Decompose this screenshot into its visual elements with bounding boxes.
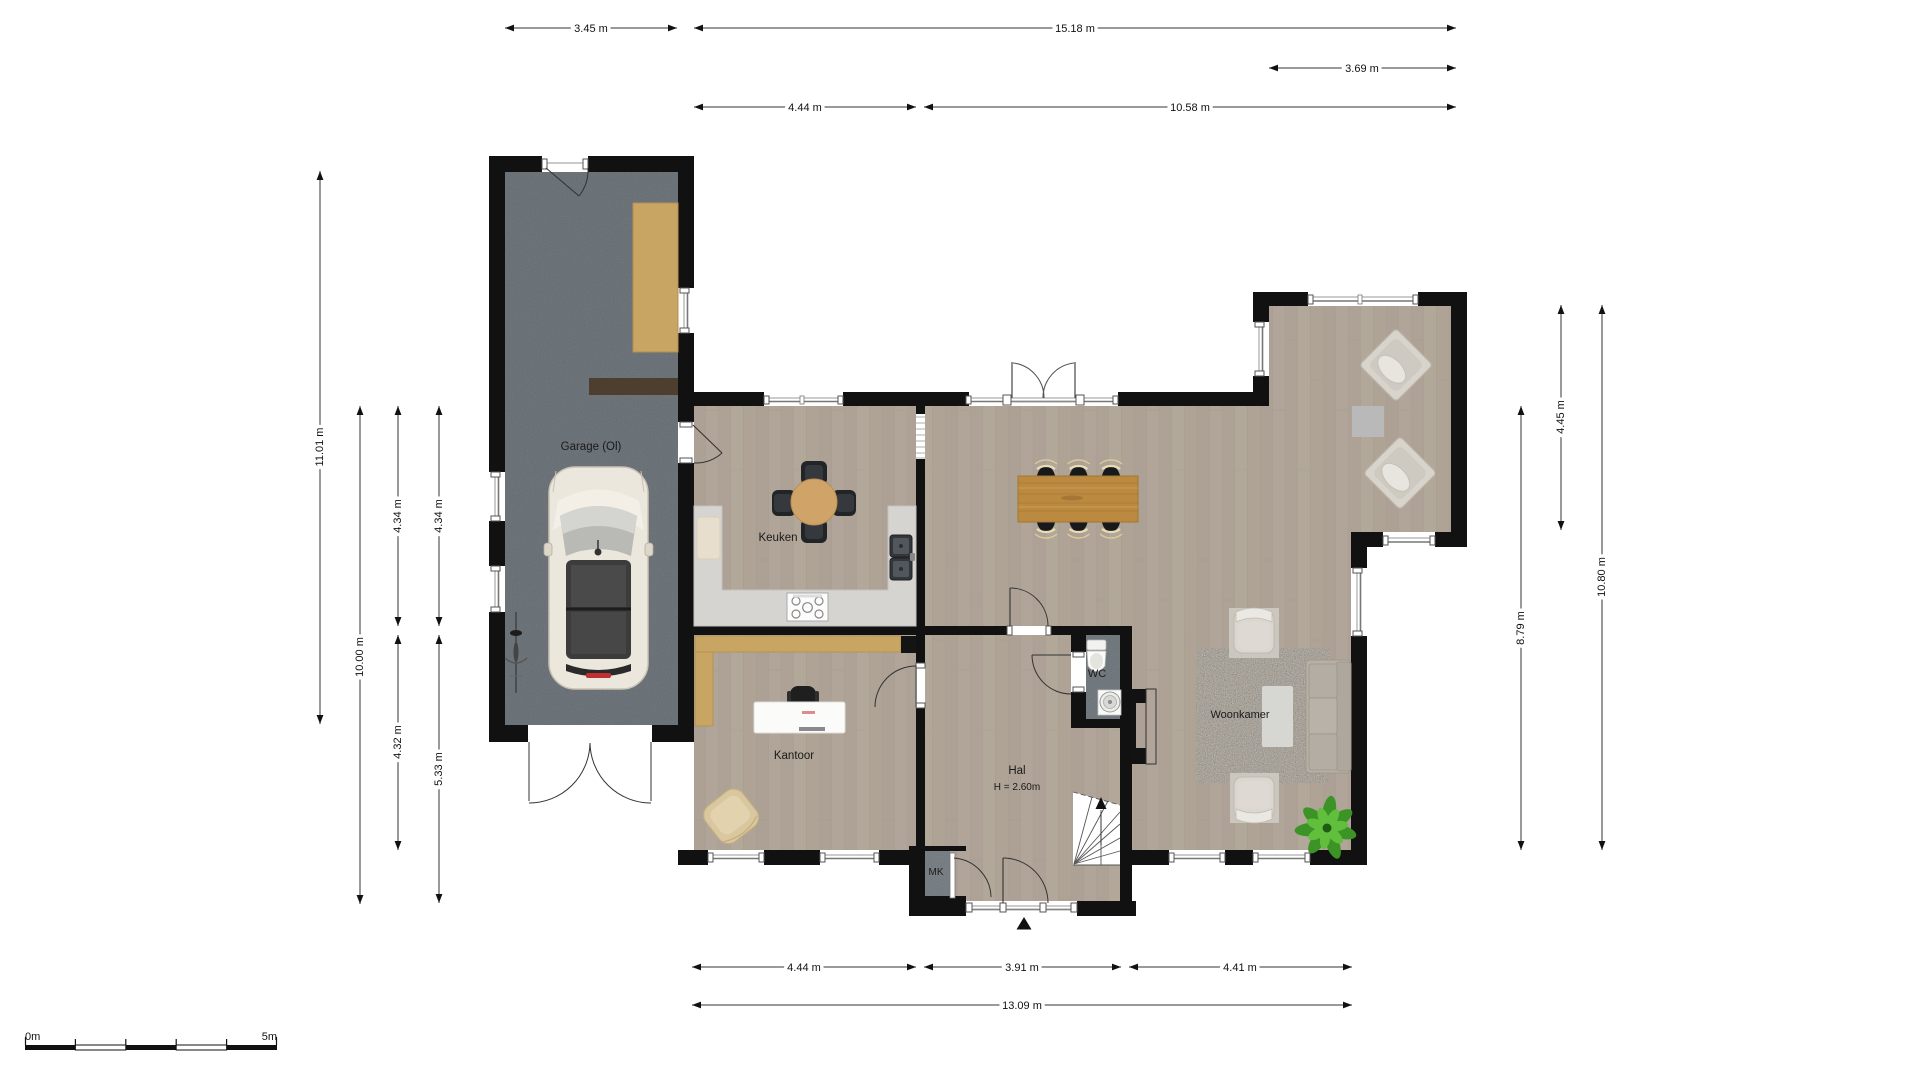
- svg-text:H = 2.60m: H = 2.60m: [994, 782, 1040, 793]
- svg-text:5.33 m: 5.33 m: [433, 752, 445, 786]
- svg-text:4.44 m: 4.44 m: [788, 102, 822, 114]
- svg-text:5m: 5m: [262, 1031, 277, 1043]
- svg-text:11.01 m: 11.01 m: [314, 428, 326, 467]
- svg-text:3.91 m: 3.91 m: [1005, 962, 1039, 974]
- svg-text:8.79 m: 8.79 m: [1515, 611, 1527, 645]
- svg-text:10.80 m: 10.80 m: [1596, 557, 1608, 597]
- svg-text:15.18 m: 15.18 m: [1055, 23, 1095, 35]
- svg-text:Woonkamer: Woonkamer: [1210, 709, 1269, 721]
- svg-text:Hal: Hal: [1008, 765, 1025, 777]
- svg-text:4.34 m: 4.34 m: [392, 499, 404, 533]
- svg-text:Keuken: Keuken: [758, 532, 797, 544]
- svg-text:0m: 0m: [25, 1031, 40, 1043]
- svg-text:4.44 m: 4.44 m: [787, 962, 821, 974]
- svg-text:4.45 m: 4.45 m: [1555, 400, 1567, 434]
- svg-text:4.34 m: 4.34 m: [433, 499, 445, 533]
- svg-text:WC: WC: [1088, 668, 1106, 680]
- svg-text:MK: MK: [929, 867, 944, 878]
- svg-text:13.09 m: 13.09 m: [1002, 1000, 1042, 1012]
- svg-text:Garage (Ol): Garage (Ol): [561, 441, 622, 453]
- svg-text:4.32 m: 4.32 m: [392, 725, 404, 759]
- svg-text:10.00 m: 10.00 m: [354, 637, 366, 677]
- svg-text:10.58 m: 10.58 m: [1170, 102, 1210, 114]
- svg-text:3.45 m: 3.45 m: [574, 23, 608, 35]
- svg-text:4.41 m: 4.41 m: [1223, 962, 1257, 974]
- svg-text:Kantoor: Kantoor: [774, 750, 814, 762]
- svg-text:3.69 m: 3.69 m: [1345, 63, 1379, 75]
